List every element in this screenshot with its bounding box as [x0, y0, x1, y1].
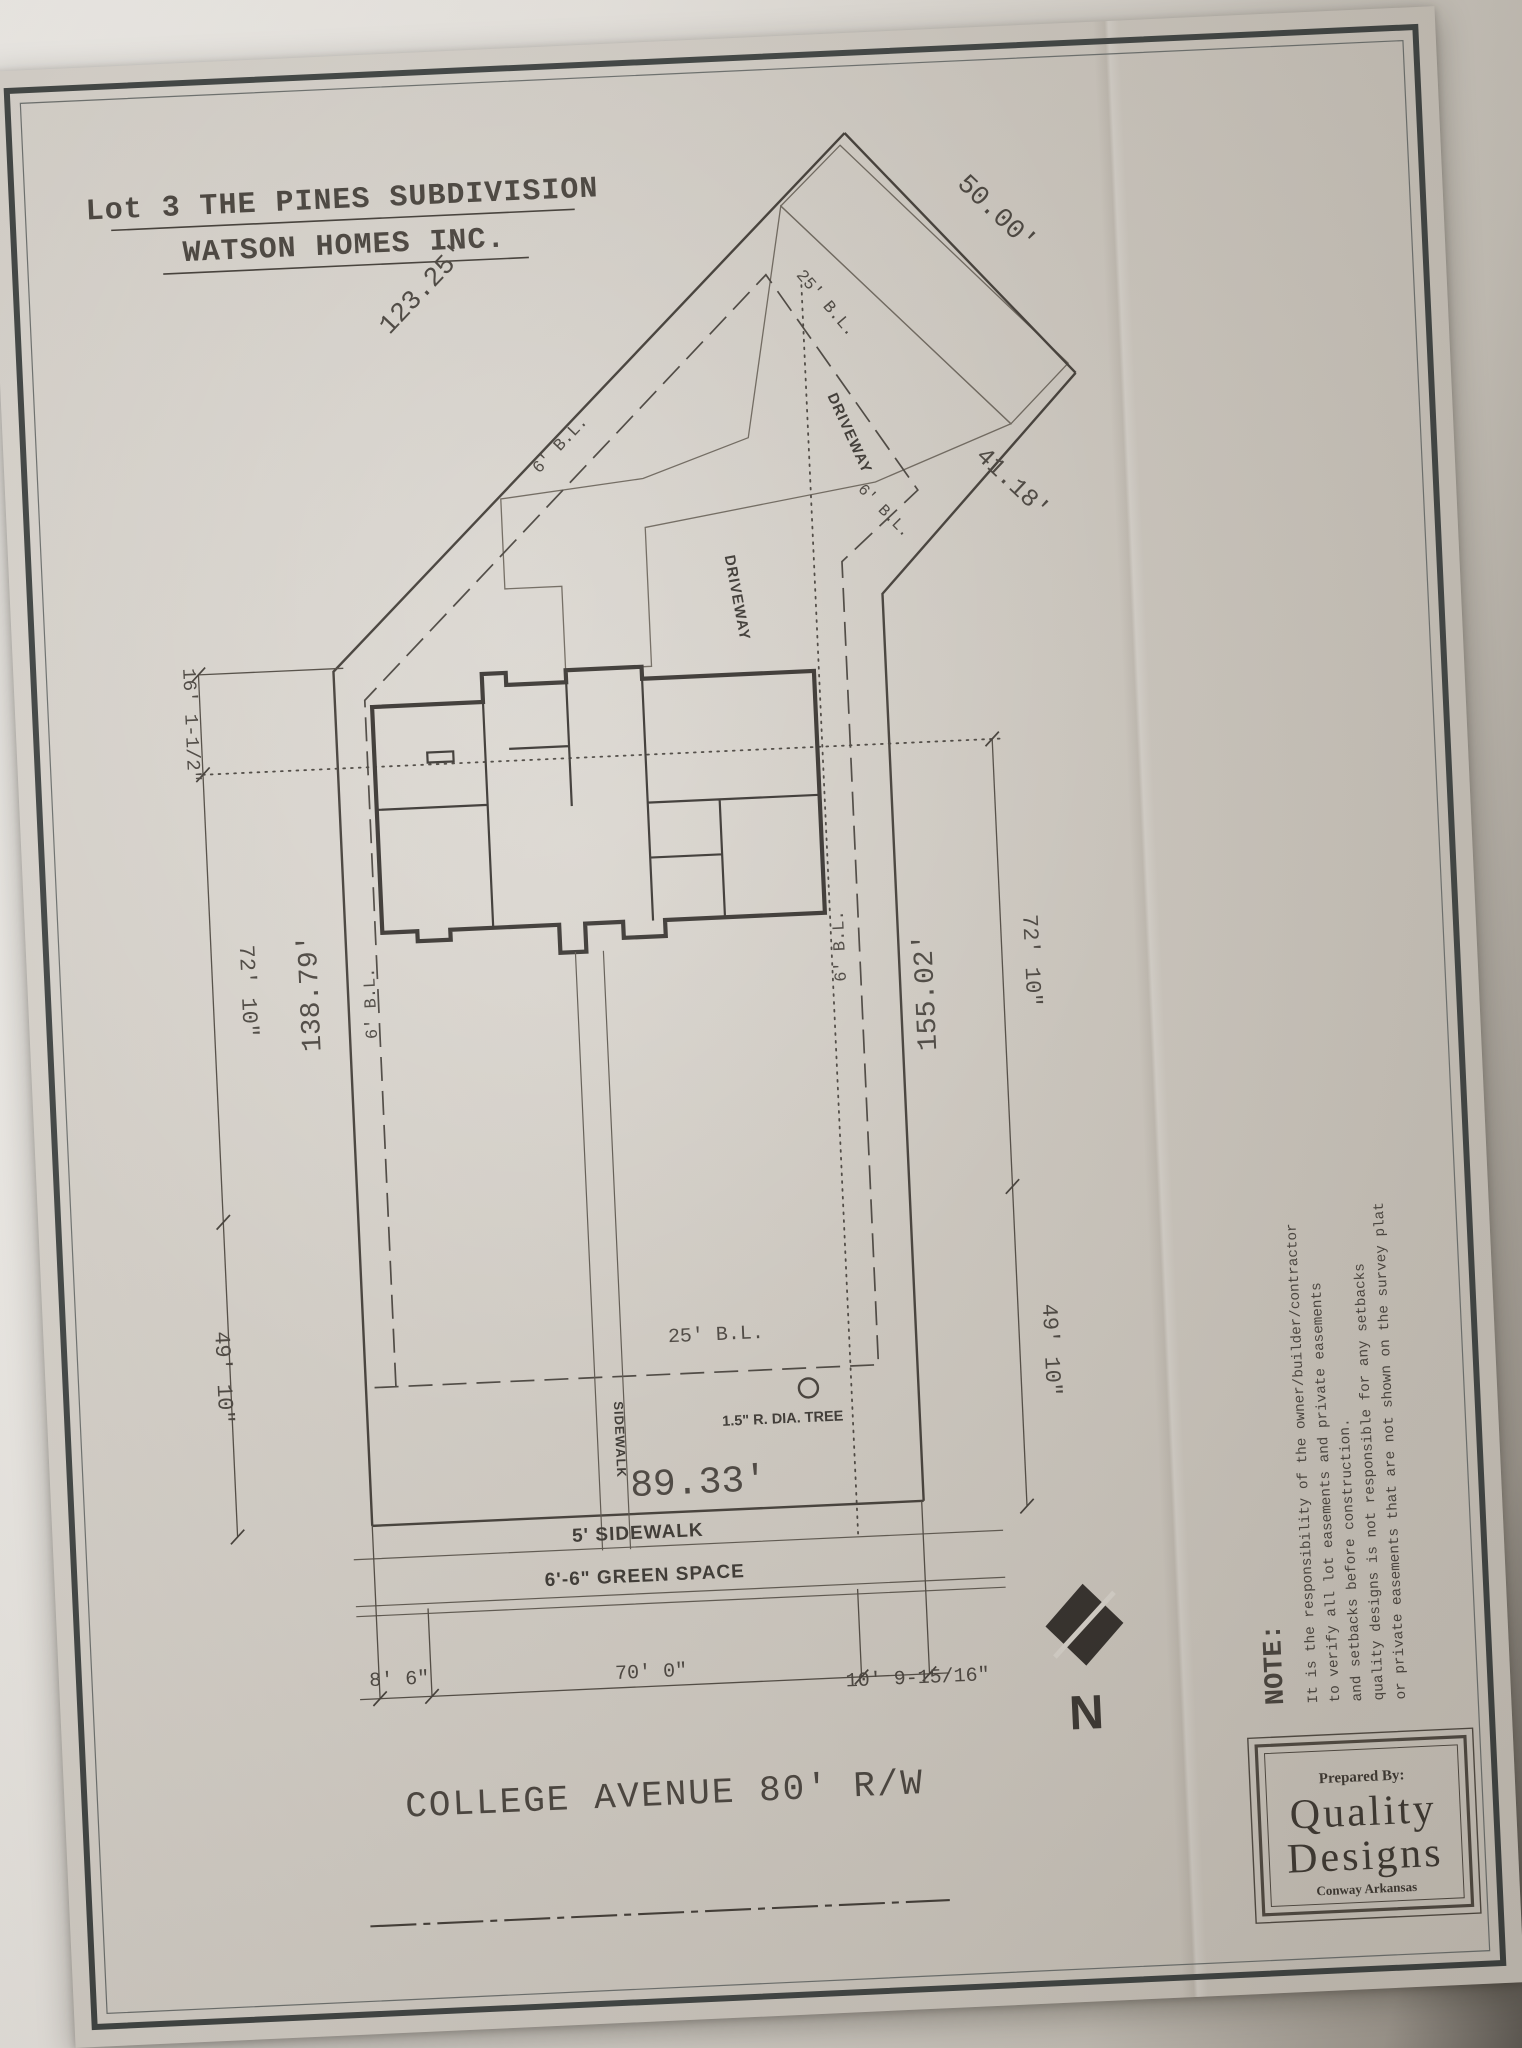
bl-right-upper-6: 6' B.L.	[854, 481, 914, 542]
dim-left-mid: 72' 10"	[233, 944, 262, 1037]
bl-front-25: 25' B.L.	[667, 1322, 764, 1349]
dim-front: 89.33'	[629, 1459, 768, 1508]
north-arrow: N	[1044, 1582, 1129, 1741]
site-plan-drawing: Lot 3 THE PINES SUBDIVISION WATSON HOMES…	[0, 6, 1522, 2048]
title-block-top: Lot 3 THE PINES SUBDIVISION WATSON HOMES…	[85, 172, 601, 277]
setback-lines	[316, 268, 957, 1388]
dim-street-mid: 70' 0"	[615, 1660, 688, 1686]
drawing-sheet: Lot 3 THE PINES SUBDIVISION WATSON HOMES…	[0, 6, 1522, 2048]
bl-left-6: 6' B.L.	[361, 967, 383, 1039]
lot-boundary	[310, 123, 1126, 1526]
dimension-lines	[191, 632, 1042, 1712]
sidewalk-band-label: 5' SIDEWALK	[572, 1520, 704, 1547]
bl-top-25: 25' B.L.	[791, 267, 859, 341]
front-walk-label: SIDEWALK	[611, 1401, 629, 1478]
left-extension-top	[198, 668, 343, 675]
firm-location: Conway Arkansas	[1316, 1879, 1417, 1899]
dim-street-left: 8' 6"	[369, 1667, 430, 1693]
tree-label: 1.5" R. DIA. TREE	[722, 1408, 844, 1430]
house-outline	[371, 659, 826, 961]
site-plan-photo: Lot 3 THE PINES SUBDIVISION WATSON HOMES…	[0, 0, 1522, 2048]
building-line-dashed	[316, 268, 957, 1388]
dotted-line-horizontal	[203, 738, 1002, 774]
street-centerline	[370, 1900, 949, 1926]
preparer-title-block: Prepared By: Quality Designs Conway Arka…	[1248, 1728, 1481, 1923]
sheet-border	[7, 27, 1503, 2027]
driveway-label-lower: DRIVEWAY	[721, 554, 754, 642]
house-interior-walls	[371, 671, 825, 933]
house-plan	[371, 659, 826, 961]
dim-left-top: 16' 1-1/2"	[177, 668, 204, 783]
dim-left-bottom: 49' 10"	[208, 1331, 237, 1424]
bl-right-mid-6: 6' B.L.	[830, 910, 852, 982]
dim-street-right: 10' 9-15/16"	[845, 1664, 990, 1694]
dim-east-line: 155.02'	[909, 933, 945, 1052]
dimension-ticks	[191, 632, 1042, 1712]
note-heading: NOTE:	[1259, 1623, 1293, 1705]
street-name: COLLEGE AVENUE 80' R/W	[404, 1763, 925, 1828]
dim-right-mid: 72' 10"	[1016, 914, 1045, 1007]
dim-west-line: 138.79'	[293, 934, 329, 1053]
lot-line-northeast	[845, 123, 1076, 383]
dim-east-diagonal: 41.18'	[970, 442, 1055, 525]
tree-symbol	[799, 1378, 819, 1398]
dim-ne-edge: 50.00'	[950, 170, 1041, 259]
title-line1: Lot 3 THE PINES SUBDIVISION	[85, 172, 599, 229]
house-fixture	[427, 751, 453, 762]
street-bands	[354, 1530, 1020, 1926]
prepared-by-label: Prepared By:	[1318, 1767, 1404, 1787]
green-space-band-label: 6'-6" GREEN SPACE	[544, 1561, 745, 1591]
north-letter: N	[1068, 1686, 1105, 1741]
right-dimension-line	[992, 739, 1027, 1506]
lot-line-west	[310, 133, 907, 1526]
dim-right-bottom: 49' 10"	[1036, 1303, 1065, 1396]
firm-name-line2: Designs	[1286, 1830, 1444, 1883]
driveway-label-upper: DRIVEWAY	[824, 390, 876, 476]
note-block: NOTE: It is the responsibility of the ow…	[1240, 1202, 1410, 1706]
